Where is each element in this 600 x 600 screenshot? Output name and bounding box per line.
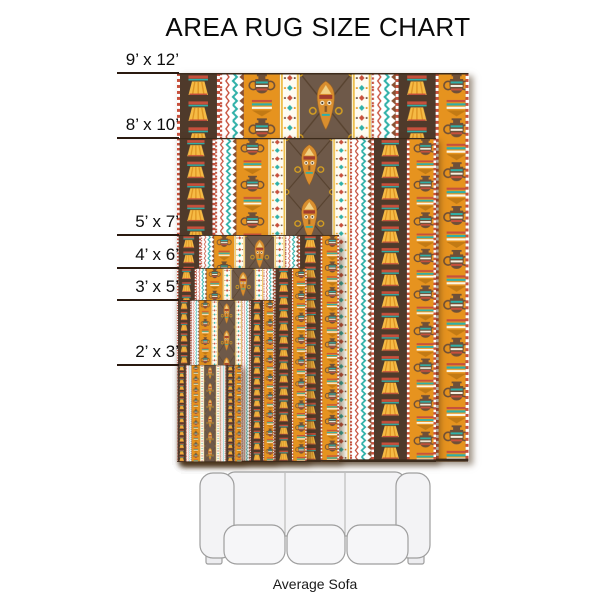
size-label-8x10: 8’ x 10’ <box>117 115 179 139</box>
size-label-3x5: 3’ x 5’ <box>117 277 179 301</box>
size-label-5x7: 5’ x 7’ <box>117 212 179 236</box>
rug-2x3 <box>177 365 242 462</box>
page-title: AREA RUG SIZE CHART <box>0 12 600 43</box>
rug-size-chart: AREA RUG SIZE CHART 9’ x 12’ 8’ x 10’ 5’… <box>0 0 600 600</box>
sofa-illustration <box>199 470 431 568</box>
sofa-label: Average Sofa <box>200 576 430 592</box>
sofa-seat-cushion <box>347 525 408 564</box>
size-label-2x3: 2’ x 3’ <box>117 342 179 366</box>
sofa-seat-cushion <box>287 525 345 564</box>
size-label-4x6: 4’ x 6’ <box>117 245 179 269</box>
size-label-9x12: 9’ x 12’ <box>117 50 179 74</box>
sofa-seat-cushion <box>224 525 285 564</box>
